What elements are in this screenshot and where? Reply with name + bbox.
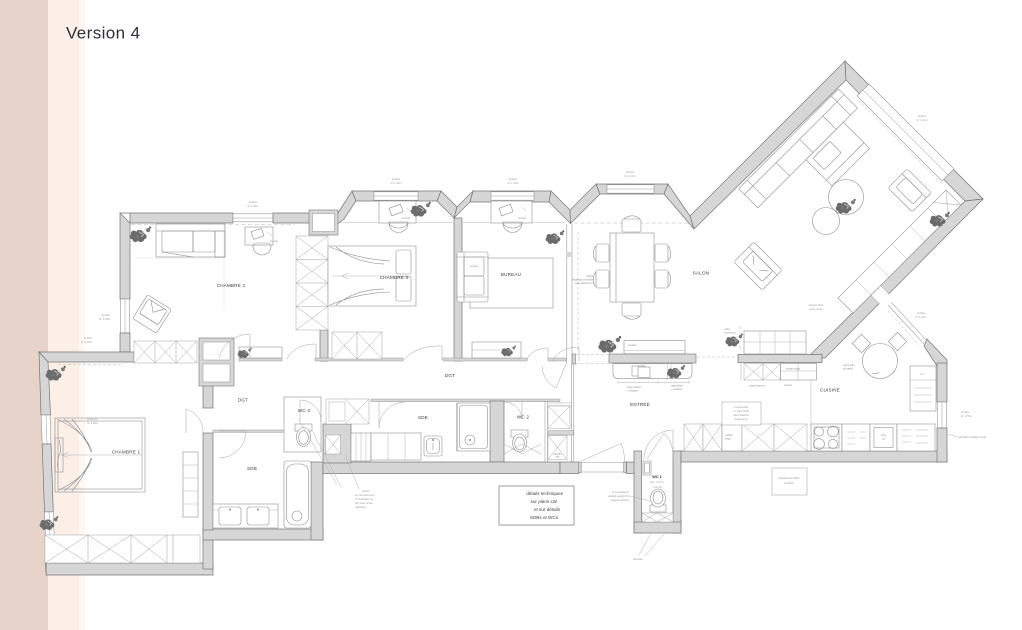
svg-text:Version 4: Version 4: [66, 24, 140, 43]
svg-text:fenêtre: fenêtre: [917, 311, 926, 315]
svg-text:fenêtre: fenêtre: [392, 177, 401, 181]
svg-text:ht. 1.10m: ht. 1.10m: [391, 181, 402, 185]
svg-text:CHAMBRE 1: CHAMBRE 1: [112, 450, 141, 455]
svg-text:palier: palier: [724, 327, 730, 331]
svg-text:armoire: armoire: [784, 384, 793, 387]
svg-text:(si souhaitée si: (si souhaitée si: [612, 490, 630, 494]
svg-text:ht. 1.75m: ht. 1.75m: [961, 414, 972, 418]
svg-text:WC 1: WC 1: [652, 475, 662, 479]
svg-text:fenêtre: fenêtre: [102, 313, 111, 317]
svg-text:l'égout: l'égout: [362, 489, 370, 493]
svg-text:frigo: frigo: [881, 433, 887, 437]
svg-text:SDBs et WCs: SDBs et WCs: [530, 515, 559, 520]
svg-text:ascenseur: ascenseur: [724, 331, 736, 335]
svg-text:BUREAU: BUREAU: [501, 272, 521, 277]
svg-text:eau: eau: [556, 456, 561, 459]
svg-text:ht. 2.20m: ht. 2.20m: [87, 421, 98, 425]
svg-text:linéaire rangt: linéaire rangt: [786, 368, 800, 371]
svg-text:de travail: de travail: [843, 368, 853, 371]
svg-text:ht. 1.10m: ht. 1.10m: [99, 317, 110, 321]
svg-text:ENTRÉE: ENTRÉE: [630, 401, 650, 407]
svg-text:élévation chffage mural: élévation chffage mural: [959, 435, 986, 439]
svg-text:fenêtre: fenêtre: [918, 114, 927, 118]
svg-text:console: console: [628, 344, 637, 347]
svg-text:emplacement REV: emplacement REV: [778, 476, 800, 480]
svg-text:fenêtre: fenêtre: [961, 410, 970, 414]
svg-text:CUISINE: CUISINE: [820, 388, 840, 393]
svg-text:SALON: SALON: [693, 271, 710, 276]
svg-text:ht. 1.10m: ht. 1.10m: [917, 118, 928, 122]
svg-text:LL dans SDB: LL dans SDB: [733, 409, 748, 413]
svg-text:adapter après DG: adapter après DG: [608, 494, 629, 498]
svg-text:hauteur libre: hauteur libre: [809, 303, 824, 307]
svg-text:rangt colonnes: rangt colonnes: [749, 385, 765, 388]
svg-text:détails techniques: détails techniques: [526, 491, 563, 496]
svg-text:rangt: rangt: [725, 438, 731, 441]
svg-text:WC 2: WC 2: [517, 415, 530, 420]
svg-text:plombier: plombier: [633, 557, 643, 561]
svg-text:et ventilation du: et ventilation du: [355, 497, 374, 501]
svg-text:avec agencement: avec agencement: [575, 282, 594, 285]
svg-text:bureau: bureau: [518, 216, 527, 220]
svg-text:alors placard: alors placard: [734, 413, 749, 417]
svg-text:LV: LV: [882, 437, 885, 441]
svg-text:déportée: déportée: [355, 505, 366, 509]
svg-text:ht. 1.10m: ht. 1.10m: [508, 181, 519, 185]
svg-text:sous poutre: sous poutre: [809, 307, 823, 311]
svg-text:si opté achat: si opté achat: [734, 405, 749, 409]
svg-text:bureau: bureau: [270, 239, 279, 243]
svg-text:CHAMBRE 3: CHAMBRE 3: [380, 275, 409, 280]
svg-text:trappes hautes): trappes hautes): [611, 498, 629, 502]
svg-text:canapé: canapé: [470, 264, 479, 268]
svg-text:ht. 1.10m: ht. 1.10m: [625, 174, 636, 178]
svg-text:et sur détails: et sur détails: [534, 507, 561, 512]
svg-text:fenêtre: fenêtre: [249, 200, 258, 204]
svg-text:WC avec sortie: WC avec sortie: [355, 501, 373, 505]
svg-text:hsp : 3.11 m: hsp : 3.11 m: [650, 480, 664, 484]
svg-text:col: col: [920, 372, 924, 376]
svg-text:à valider: à valider: [784, 481, 794, 485]
svg-text:fenêtre: fenêtre: [509, 177, 518, 181]
svg-text:1.12 m2: 1.12 m2: [652, 485, 662, 489]
svg-text:WC 3: WC 3: [298, 408, 311, 413]
svg-text:DGT: DGT: [238, 398, 248, 403]
svg-text:fenêtre: fenêtre: [626, 170, 635, 174]
svg-text:rangements: rangements: [734, 417, 748, 421]
svg-text:CHAMBRE 2: CHAMBRE 2: [217, 283, 246, 288]
svg-text:sur plans LW: sur plans LW: [531, 499, 558, 504]
svg-text:ht. 1.10m: ht. 1.10m: [248, 204, 259, 208]
svg-text:ht. 1.10m: ht. 1.10m: [916, 315, 927, 319]
svg-text:en raccordement: en raccordement: [355, 493, 375, 497]
svg-text:ht. 2.20m: ht. 2.20m: [81, 340, 92, 344]
svg-text:bureau: bureau: [402, 216, 411, 220]
svg-text:porte fen.: porte fen.: [87, 417, 98, 421]
svg-text:fenêtre: fenêtre: [84, 336, 93, 340]
svg-text:SDB: SDB: [247, 466, 257, 471]
svg-text:+ vestiaire: + vestiaire: [627, 390, 639, 393]
svg-text:+ vestiaire: + vestiaire: [671, 388, 683, 391]
svg-text:DGT: DGT: [445, 373, 455, 378]
svg-text:SDE: SDE: [418, 415, 428, 420]
